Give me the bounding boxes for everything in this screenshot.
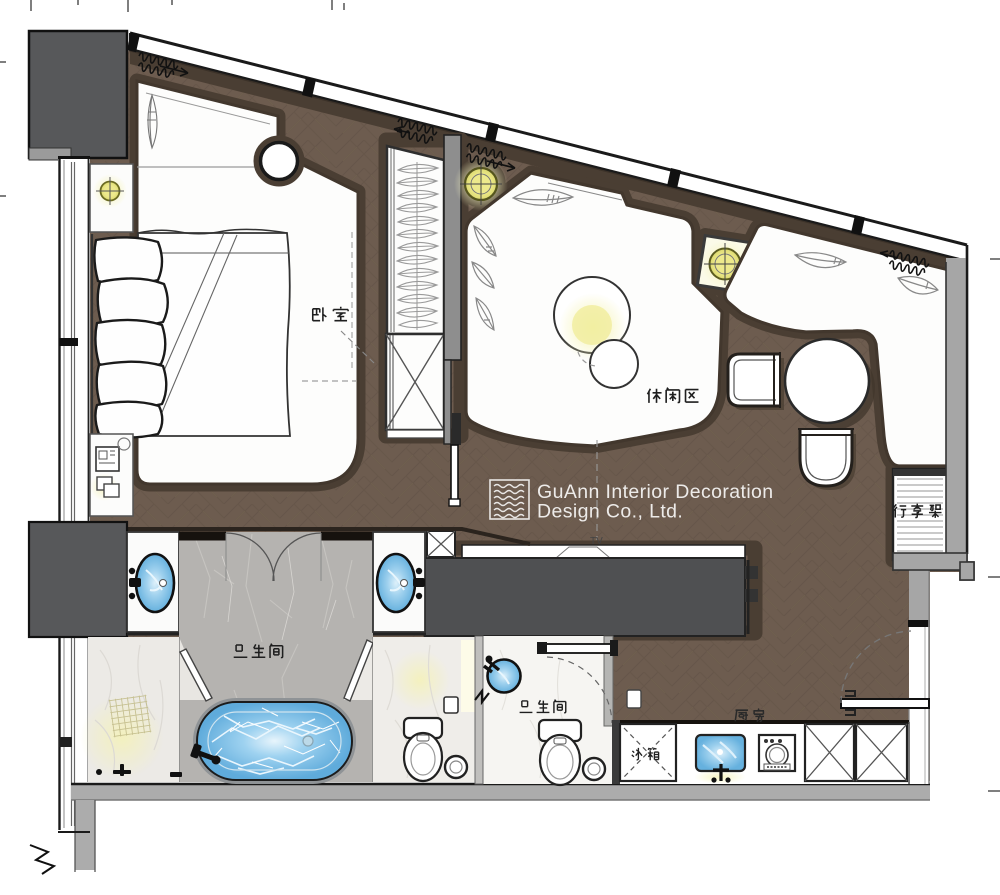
svg-text:Design Co., Ltd.: Design Co., Ltd. <box>537 501 683 523</box>
svg-text:TV: TV <box>590 536 603 547</box>
